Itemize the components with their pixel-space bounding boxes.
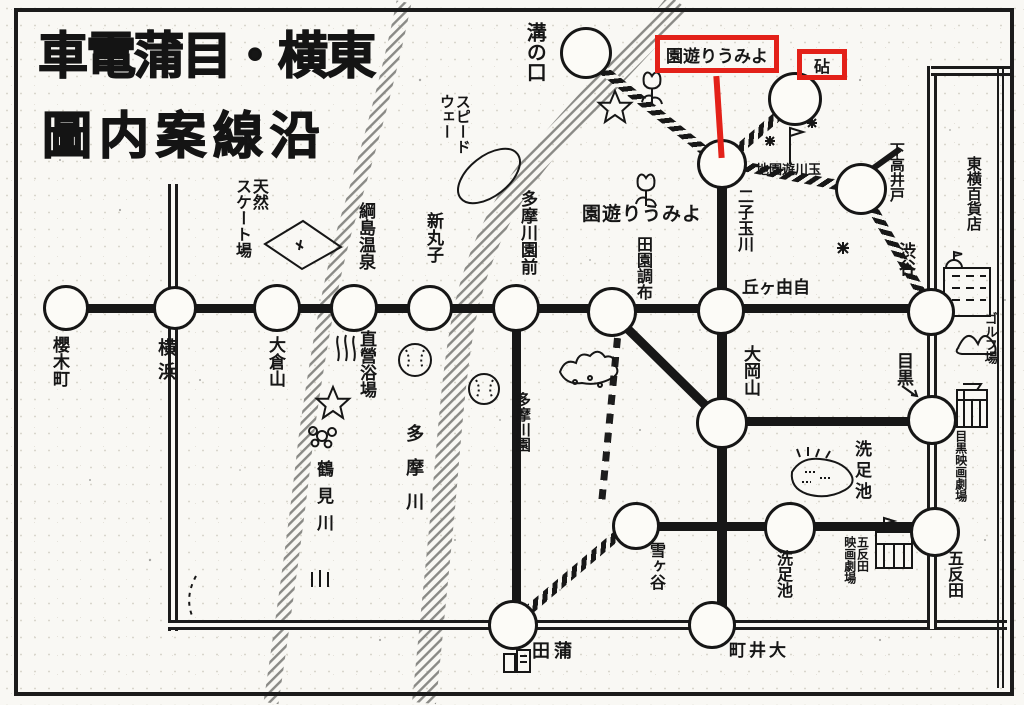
map-inner-right-border	[997, 68, 1004, 688]
railway-map: 車電蒲目・横東 圖内案線沿 溝の口 スピード ウェー 天然 スケート場 綱島温泉…	[0, 0, 1024, 705]
map-outer-border	[14, 8, 1014, 696]
